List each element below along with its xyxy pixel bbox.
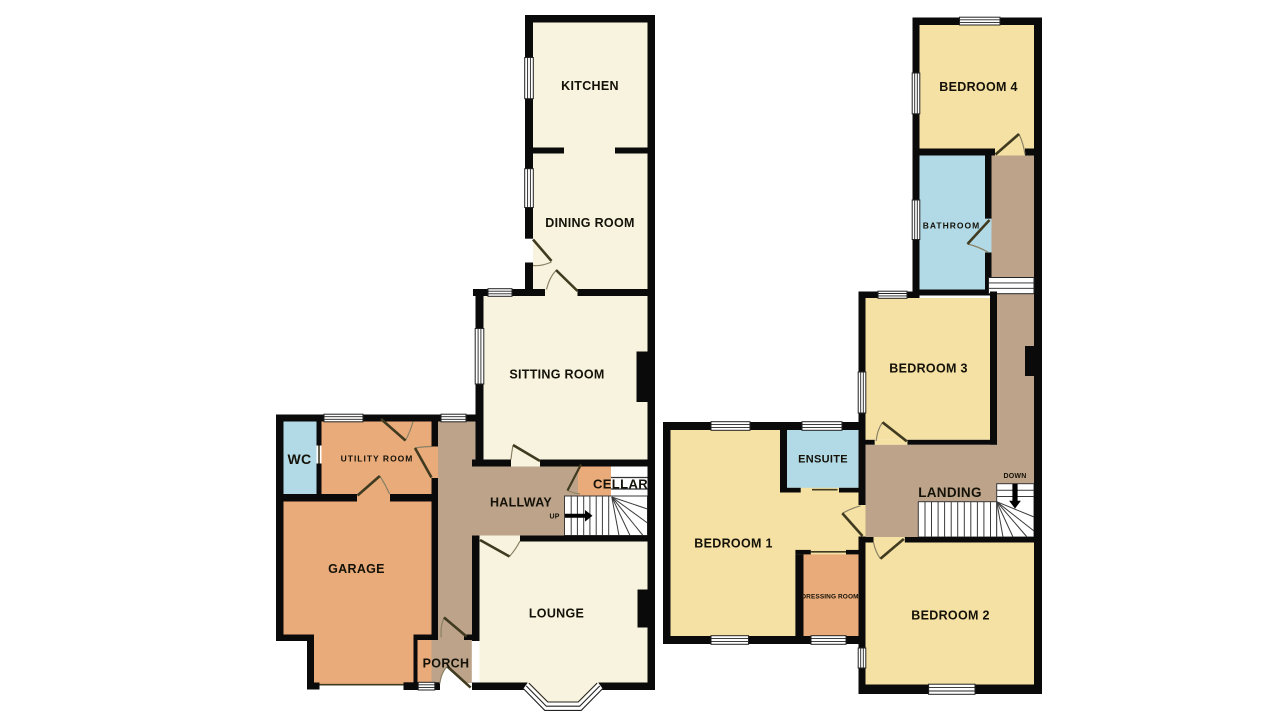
svg-text:BEDROOM 4: BEDROOM 4	[939, 80, 1017, 94]
svg-text:BEDROOM 3: BEDROOM 3	[889, 362, 967, 376]
svg-text:GARAGE: GARAGE	[328, 562, 385, 576]
svg-text:BEDROOM 2: BEDROOM 2	[911, 609, 989, 623]
svg-text:WC: WC	[288, 451, 312, 467]
svg-text:BEDROOM 1: BEDROOM 1	[694, 537, 772, 551]
svg-text:LANDING: LANDING	[918, 485, 982, 500]
svg-text:DINING ROOM: DINING ROOM	[545, 216, 634, 230]
svg-text:BATHROOM: BATHROOM	[923, 221, 980, 231]
svg-text:LOUNGE: LOUNGE	[529, 607, 584, 621]
svg-text:SITTING ROOM: SITTING ROOM	[509, 368, 604, 382]
svg-text:DRESSING ROOM: DRESSING ROOM	[801, 594, 858, 601]
svg-text:UP: UP	[549, 513, 559, 520]
svg-text:HALLWAY: HALLWAY	[490, 496, 552, 510]
svg-text:KITCHEN: KITCHEN	[561, 79, 619, 93]
svg-text:ENSUITE: ENSUITE	[798, 454, 848, 466]
svg-text:DOWN: DOWN	[1004, 473, 1027, 480]
svg-text:PORCH: PORCH	[423, 657, 470, 671]
svg-text:UTILITY ROOM: UTILITY ROOM	[341, 454, 414, 464]
svg-text:CELLAR: CELLAR	[593, 477, 648, 492]
